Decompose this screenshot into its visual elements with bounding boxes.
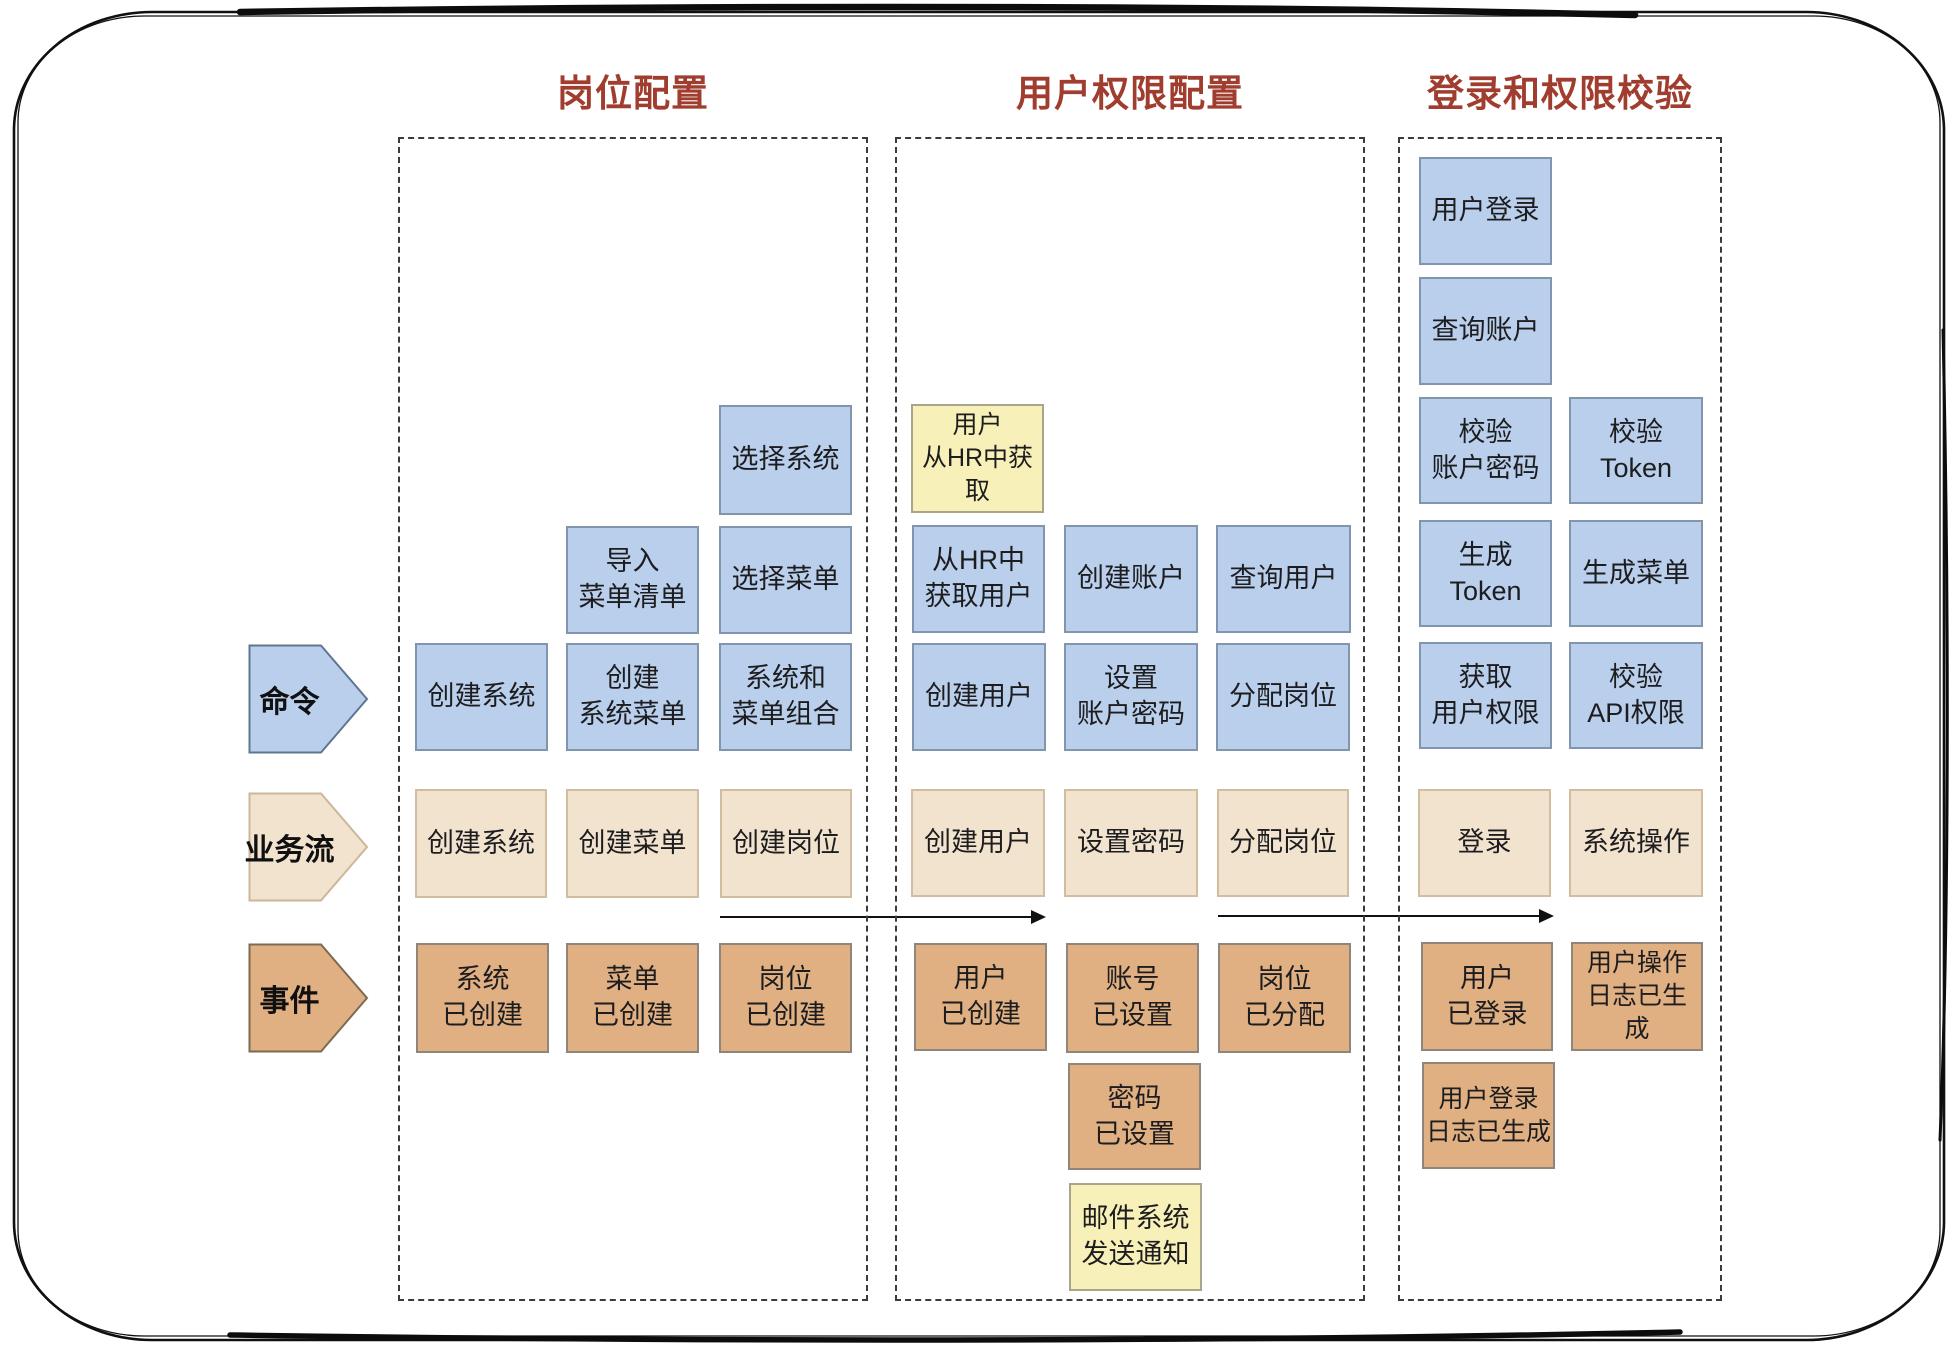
row-label-business-flow: 业务流 bbox=[248, 792, 369, 902]
card-event-user-logged-in: 用户 已登录 bbox=[1421, 942, 1553, 1051]
card-event-login-log-generated: 用户登录 日志已生成 bbox=[1422, 1062, 1555, 1169]
card-create-system-command: 创建系统 bbox=[415, 643, 548, 751]
card-flow-login: 登录 bbox=[1418, 789, 1551, 897]
row-label-command-text: 命令 bbox=[248, 644, 369, 754]
card-create-system-menu: 创建 系统菜单 bbox=[566, 643, 699, 751]
card-query-account: 查询账户 bbox=[1419, 277, 1552, 385]
card-event-account-set: 账号 已设置 bbox=[1066, 943, 1199, 1053]
card-set-account-password: 设置 账户密码 bbox=[1064, 643, 1198, 751]
card-query-user: 查询用户 bbox=[1216, 525, 1351, 633]
event-storming-diagram: 岗位配置 用户权限配置 登录和权限校验 命令 业务流 事件 选择系统 导入 菜单… bbox=[0, 0, 1960, 1354]
card-flow-create-system: 创建系统 bbox=[415, 789, 547, 898]
section-title-post-configuration: 岗位配置 bbox=[398, 74, 868, 115]
card-select-system: 选择系统 bbox=[719, 405, 852, 515]
section-title-user-permission-configuration: 用户权限配置 bbox=[895, 74, 1365, 115]
card-flow-create-menu: 创建菜单 bbox=[566, 789, 699, 898]
card-event-operation-log-generated: 用户操作 日志已生成 bbox=[1571, 942, 1703, 1051]
card-verify-api-permission: 校验 API权限 bbox=[1569, 642, 1703, 749]
row-label-event-text: 事件 bbox=[248, 943, 369, 1053]
card-assign-post-command: 分配岗位 bbox=[1216, 643, 1350, 751]
card-external-mail-system-notify: 邮件系统 发送通知 bbox=[1069, 1183, 1202, 1291]
card-verify-account-password: 校验 账户密码 bbox=[1419, 397, 1552, 504]
card-event-system-created: 系统 已创建 bbox=[416, 943, 549, 1053]
card-get-user-permissions: 获取 用户权限 bbox=[1419, 642, 1552, 749]
card-event-post-assigned: 岗位 已分配 bbox=[1218, 943, 1351, 1053]
card-verify-token: 校验 Token bbox=[1569, 397, 1703, 504]
card-import-menu-list: 导入 菜单清单 bbox=[566, 526, 699, 634]
card-flow-system-operation: 系统操作 bbox=[1569, 789, 1703, 897]
card-create-user-command: 创建用户 bbox=[912, 643, 1046, 751]
card-generate-token: 生成 Token bbox=[1419, 520, 1552, 627]
card-select-menu: 选择菜单 bbox=[719, 526, 852, 634]
card-event-post-created: 岗位 已创建 bbox=[719, 943, 852, 1053]
card-generate-menu: 生成菜单 bbox=[1569, 520, 1703, 627]
card-system-menu-combination: 系统和 菜单组合 bbox=[719, 643, 852, 751]
card-external-user-from-hr: 用户 从HR中获取 bbox=[911, 404, 1044, 513]
card-event-menu-created: 菜单 已创建 bbox=[566, 943, 699, 1053]
row-label-event: 事件 bbox=[248, 943, 369, 1053]
card-user-login: 用户登录 bbox=[1419, 157, 1552, 265]
row-label-business-flow-text: 业务流 bbox=[248, 792, 369, 902]
card-get-user-from-hr: 从HR中 获取用户 bbox=[912, 525, 1045, 633]
card-event-user-created: 用户 已创建 bbox=[914, 943, 1047, 1051]
card-create-account: 创建账户 bbox=[1064, 525, 1198, 633]
card-flow-create-post: 创建岗位 bbox=[720, 789, 852, 898]
section-title-login-and-permission-check: 登录和权限校验 bbox=[1398, 74, 1722, 115]
card-event-password-set: 密码 已设置 bbox=[1068, 1063, 1201, 1170]
card-flow-set-password: 设置密码 bbox=[1064, 789, 1198, 897]
row-label-command: 命令 bbox=[248, 644, 369, 754]
card-flow-assign-post: 分配岗位 bbox=[1217, 789, 1349, 897]
card-flow-create-user: 创建用户 bbox=[911, 789, 1045, 897]
